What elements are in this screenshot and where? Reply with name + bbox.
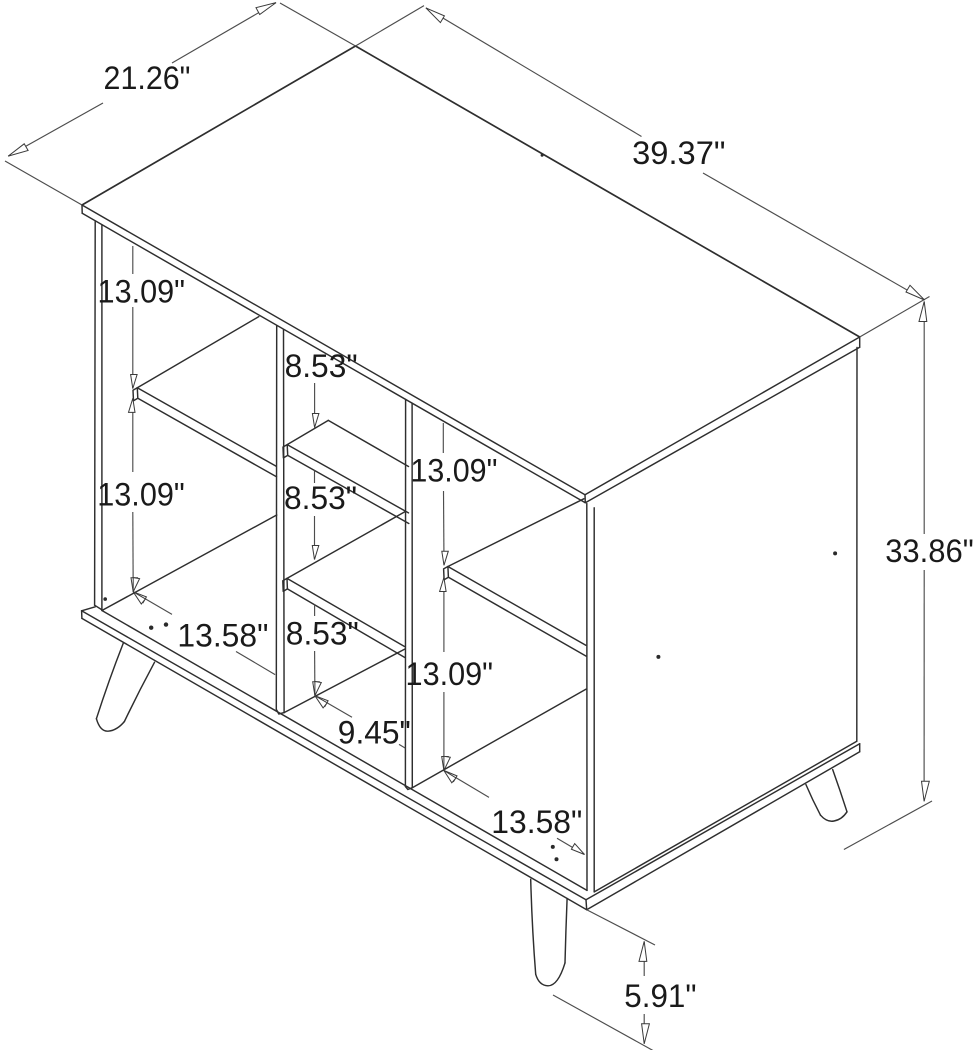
svg-text:33.86": 33.86": [885, 533, 974, 569]
svg-text:13.58": 13.58": [491, 804, 582, 840]
svg-text:13.09": 13.09": [406, 656, 494, 692]
svg-text:8.53": 8.53": [285, 348, 358, 384]
svg-text:13.58": 13.58": [177, 618, 268, 654]
svg-text:39.37": 39.37": [632, 135, 725, 171]
svg-text:8.53": 8.53": [284, 480, 357, 516]
svg-text:13.09": 13.09": [97, 477, 185, 513]
svg-text:9.45": 9.45": [338, 715, 411, 751]
svg-text:13.09": 13.09": [410, 453, 497, 489]
svg-text:5.91": 5.91": [624, 978, 696, 1014]
svg-text:13.09": 13.09": [98, 274, 186, 310]
svg-text:8.53": 8.53": [286, 616, 359, 652]
svg-text:21.26": 21.26": [104, 60, 191, 96]
